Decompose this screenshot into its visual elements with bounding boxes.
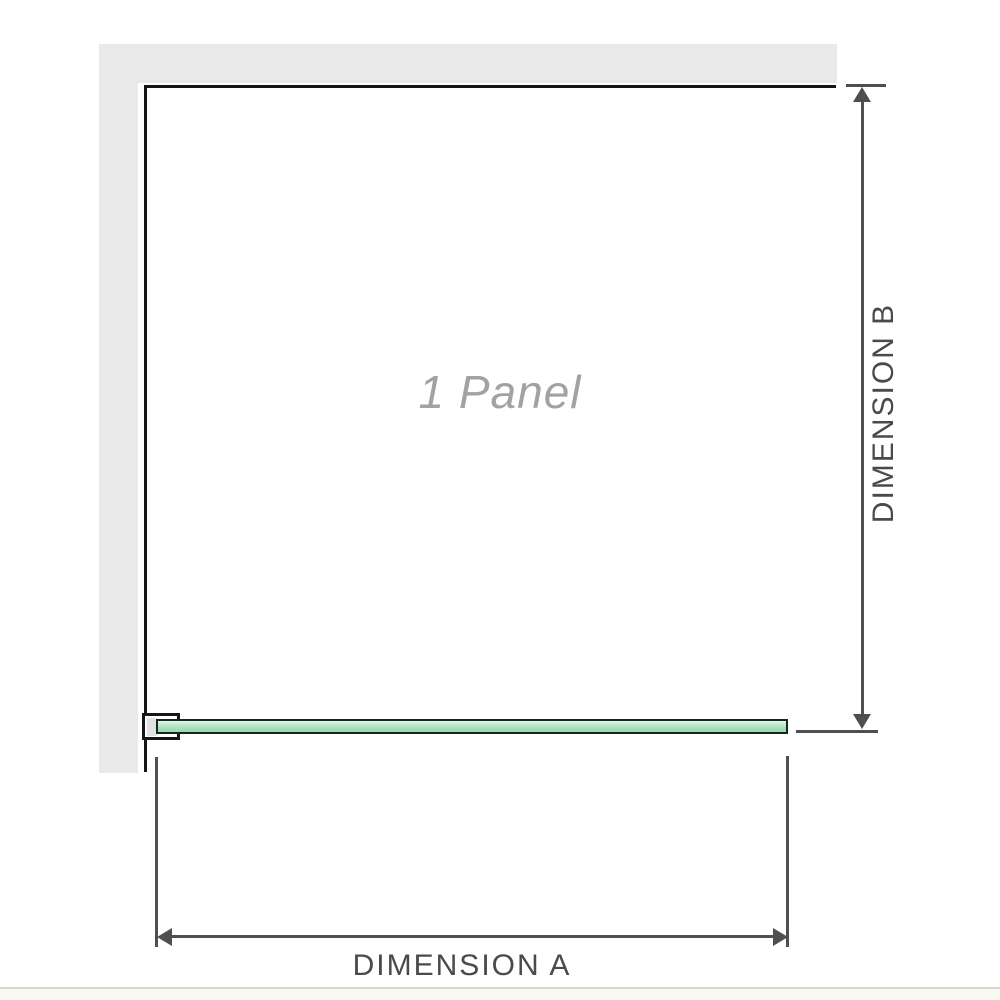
panel-count-label: 1 Panel: [350, 362, 650, 422]
page-background-strip: [0, 989, 1000, 1000]
dimension-b-arrowhead-down-icon: [853, 714, 871, 729]
dimension-a-label: DIMENSION A: [152, 948, 772, 984]
dimension-b-arrowhead-up-icon: [853, 87, 871, 102]
dimension-a-arrowhead-left-icon: [157, 928, 172, 946]
glass-panel: [156, 719, 788, 734]
dimension-a-right-extension-line: [786, 756, 789, 947]
dimension-b-label: DIMENSION B: [868, 213, 900, 613]
dimension-b-line: [861, 95, 864, 722]
dimension-a-left-extension-line: [155, 757, 158, 947]
dimension-a-arrowhead-right-icon: [773, 928, 788, 946]
dimension-a-line: [166, 935, 780, 938]
shower-area-outline: [144, 85, 836, 772]
wall-left: [99, 44, 138, 773]
dimension-b-bottom-tick: [796, 730, 878, 733]
wall-top: [99, 44, 837, 83]
